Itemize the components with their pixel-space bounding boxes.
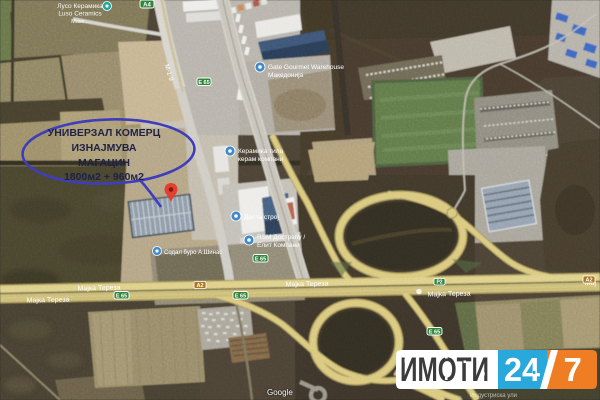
svg-text:Google: Google <box>267 388 293 397</box>
svg-text:24: 24 <box>504 351 541 388</box>
svg-text:7: 7 <box>564 351 582 388</box>
svg-text:ИМОТИ: ИМОТИ <box>400 351 489 389</box>
